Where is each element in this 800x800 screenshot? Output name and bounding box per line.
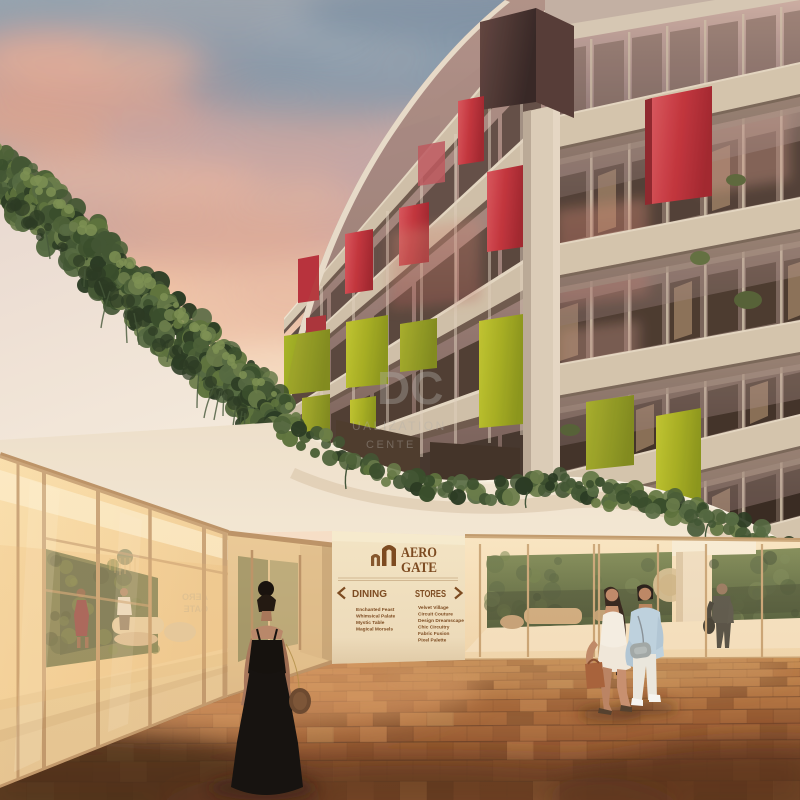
svg-text:STORES: STORES <box>415 589 446 600</box>
svg-text:Fabric Fusion: Fabric Fusion <box>418 631 450 637</box>
svg-text:Pixel Palette: Pixel Palette <box>418 638 447 644</box>
svg-text:CENTE: CENTE <box>366 439 416 451</box>
svg-text:Design Dreamscape: Design Dreamscape <box>418 618 464 624</box>
svg-text:Magical Morsels: Magical Morsels <box>356 627 393 633</box>
svg-text:DC: DC <box>377 362 443 414</box>
svg-text:DINING: DINING <box>352 589 387 600</box>
svg-text:Whimsical Palate: Whimsical Palate <box>356 614 396 620</box>
svg-text:GATE: GATE <box>401 560 437 576</box>
svg-text:Mystic Table: Mystic Table <box>356 620 385 626</box>
svg-text:AERO: AERO <box>401 545 437 561</box>
svg-text:UALIZATION: UALIZATION <box>352 419 447 433</box>
svg-text:Enchanted Feast: Enchanted Feast <box>356 607 395 613</box>
svg-text:Chic Circuitry: Chic Circuitry <box>418 625 450 631</box>
svg-text:Velvet Village: Velvet Village <box>418 605 449 611</box>
svg-text:Circuit Couture: Circuit Couture <box>418 612 453 618</box>
